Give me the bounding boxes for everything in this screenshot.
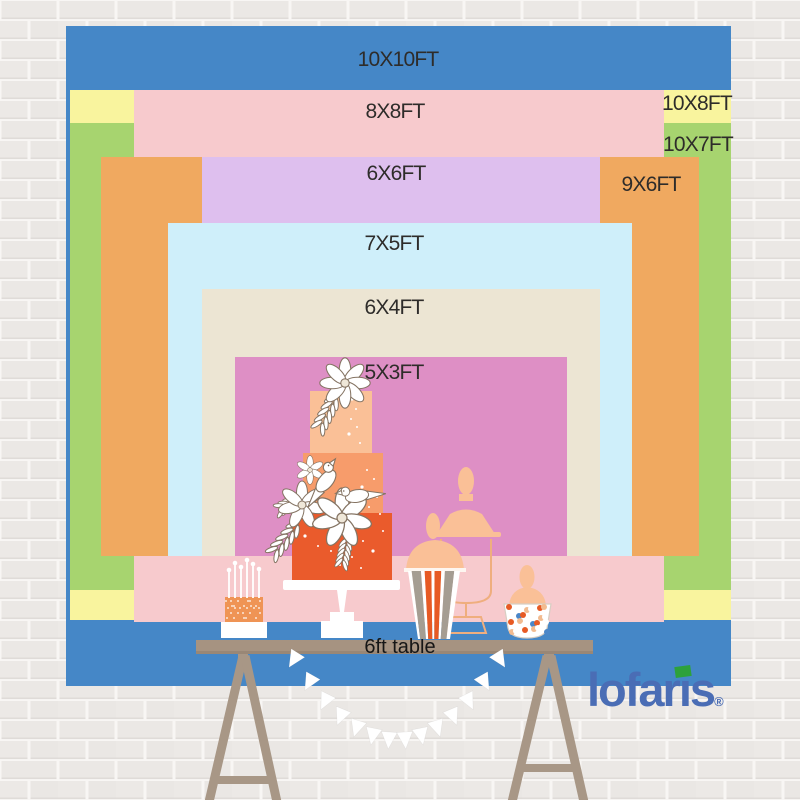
product-image: 6ft table xyxy=(0,0,800,800)
logo-i-dot-green-icon xyxy=(674,665,691,678)
candy-jar xyxy=(504,565,551,638)
tiered-cake xyxy=(262,358,400,638)
pennant-banner xyxy=(282,649,512,750)
table-leg-right xyxy=(512,652,584,800)
candle-cake xyxy=(221,558,267,638)
cake-stand xyxy=(283,580,400,638)
logo-letter-i: ı xyxy=(679,662,690,717)
table-leg-left xyxy=(209,652,277,800)
registered-trademark: ® xyxy=(714,694,724,709)
table-size-label: 6ft table xyxy=(364,636,435,658)
logo-text-pre: lofar xyxy=(587,663,679,716)
popcorn-stripes xyxy=(408,571,460,639)
logo-text-post: s xyxy=(690,663,714,716)
lofaris-logo: lofarıs® xyxy=(587,662,724,717)
birthday-candles xyxy=(227,558,262,598)
